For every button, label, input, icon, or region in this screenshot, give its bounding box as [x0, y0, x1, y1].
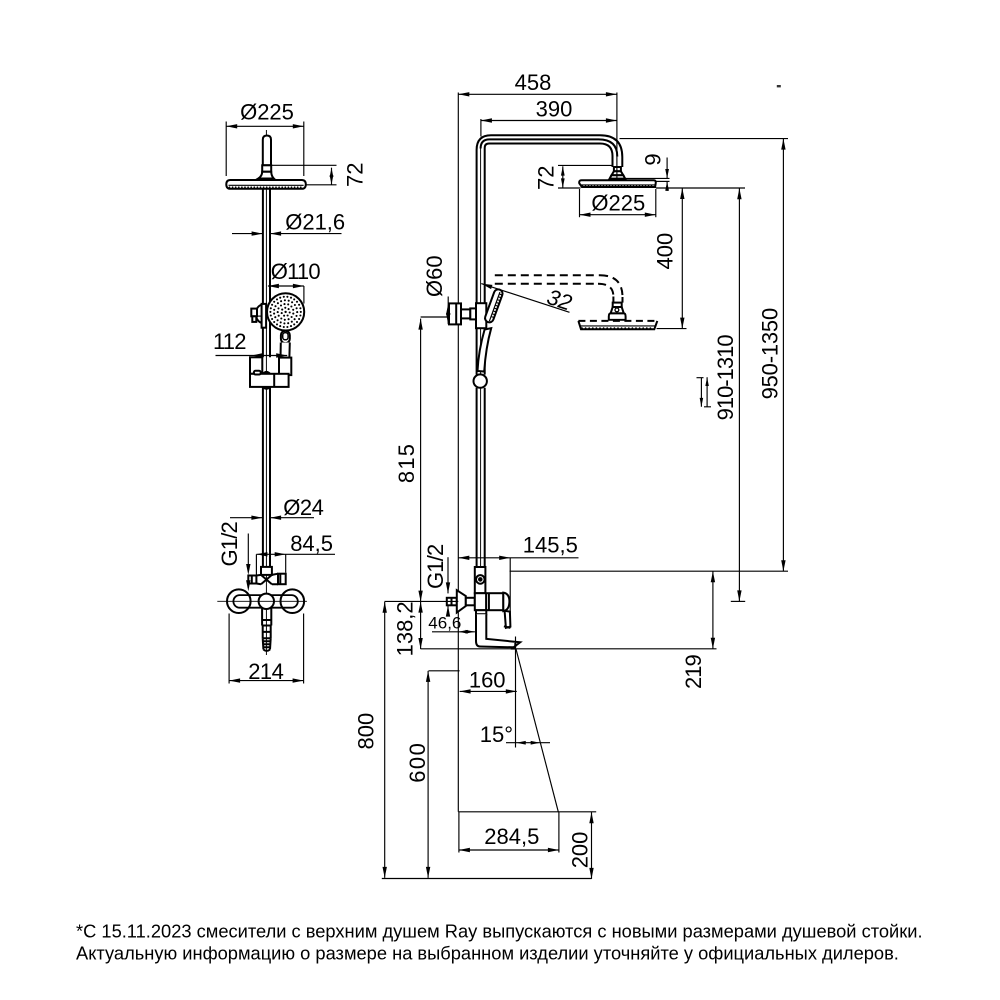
svg-text:200: 200: [568, 832, 593, 869]
svg-text:219: 219: [681, 655, 706, 689]
svg-text:138,2: 138,2: [393, 601, 418, 656]
svg-text:390: 390: [536, 97, 573, 122]
svg-text:Ø225: Ø225: [591, 191, 645, 216]
svg-text:950-1350: 950-1350: [758, 308, 783, 399]
svg-text:910-1310: 910-1310: [713, 335, 738, 421]
svg-text:815: 815: [394, 443, 419, 483]
svg-text:800: 800: [354, 713, 379, 750]
svg-text:G1/2: G1/2: [217, 521, 242, 566]
svg-text:Ø24: Ø24: [283, 495, 323, 520]
svg-text:458: 458: [515, 70, 552, 95]
svg-text:112: 112: [213, 329, 246, 354]
svg-text:160: 160: [469, 668, 506, 693]
svg-text:600: 600: [405, 742, 430, 783]
svg-text:284,5: 284,5: [484, 824, 539, 849]
svg-text:Актуальную информацию о размер: Актуальную информацию о размере на выбра…: [76, 942, 899, 963]
svg-text:G1/2: G1/2: [423, 544, 448, 589]
svg-text:Ø110: Ø110: [271, 259, 321, 284]
svg-text:84,5: 84,5: [290, 531, 333, 556]
svg-text:9: 9: [641, 153, 666, 165]
svg-text:72: 72: [534, 166, 559, 190]
svg-text:145,5: 145,5: [523, 533, 578, 558]
svg-text:*С 15.11.2023 смесители с верх: *С 15.11.2023 смесители с верхним душем …: [76, 921, 923, 942]
svg-text:46,6: 46,6: [428, 614, 461, 633]
svg-text:Ø21,6: Ø21,6: [285, 209, 345, 234]
svg-text:72: 72: [343, 163, 368, 187]
svg-text:400: 400: [653, 233, 678, 270]
svg-text:Ø60: Ø60: [422, 255, 447, 297]
svg-text:Ø225: Ø225: [240, 100, 294, 125]
